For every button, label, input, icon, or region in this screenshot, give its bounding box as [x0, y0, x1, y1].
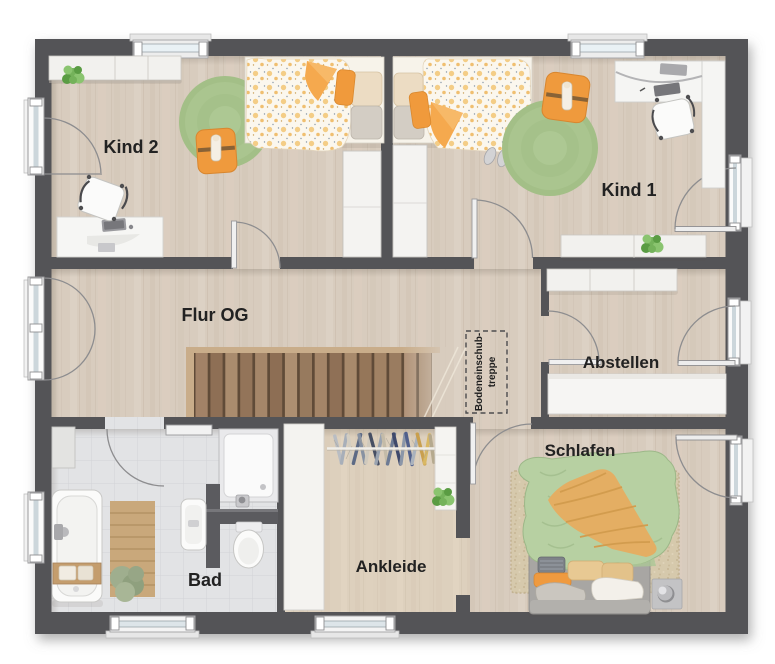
svg-text:Kind 1: Kind 1	[601, 180, 656, 200]
svg-text:Bad: Bad	[188, 570, 222, 590]
svg-text:Abstellen: Abstellen	[583, 353, 660, 372]
svg-text:Bodeneinschub-: Bodeneinschub-	[474, 333, 485, 411]
svg-text:treppe: treppe	[487, 356, 498, 387]
svg-text:Ankleide: Ankleide	[356, 557, 427, 576]
svg-text:Kind 2: Kind 2	[103, 137, 158, 157]
svg-text:Flur OG: Flur OG	[182, 305, 249, 325]
svg-text:Schlafen: Schlafen	[545, 441, 616, 460]
